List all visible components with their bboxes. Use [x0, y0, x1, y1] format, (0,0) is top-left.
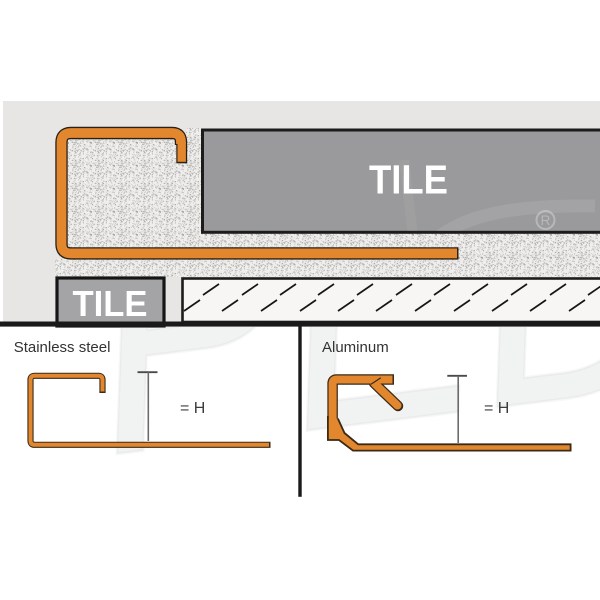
- svg-text:= H: = H: [180, 400, 205, 417]
- svg-text:Stainless steel: Stainless steel: [14, 339, 111, 356]
- svg-text:TILE: TILE: [73, 283, 148, 324]
- svg-text:Aluminum: Aluminum: [322, 339, 389, 356]
- svg-text:R: R: [541, 213, 551, 228]
- svg-text:= H: = H: [484, 400, 509, 417]
